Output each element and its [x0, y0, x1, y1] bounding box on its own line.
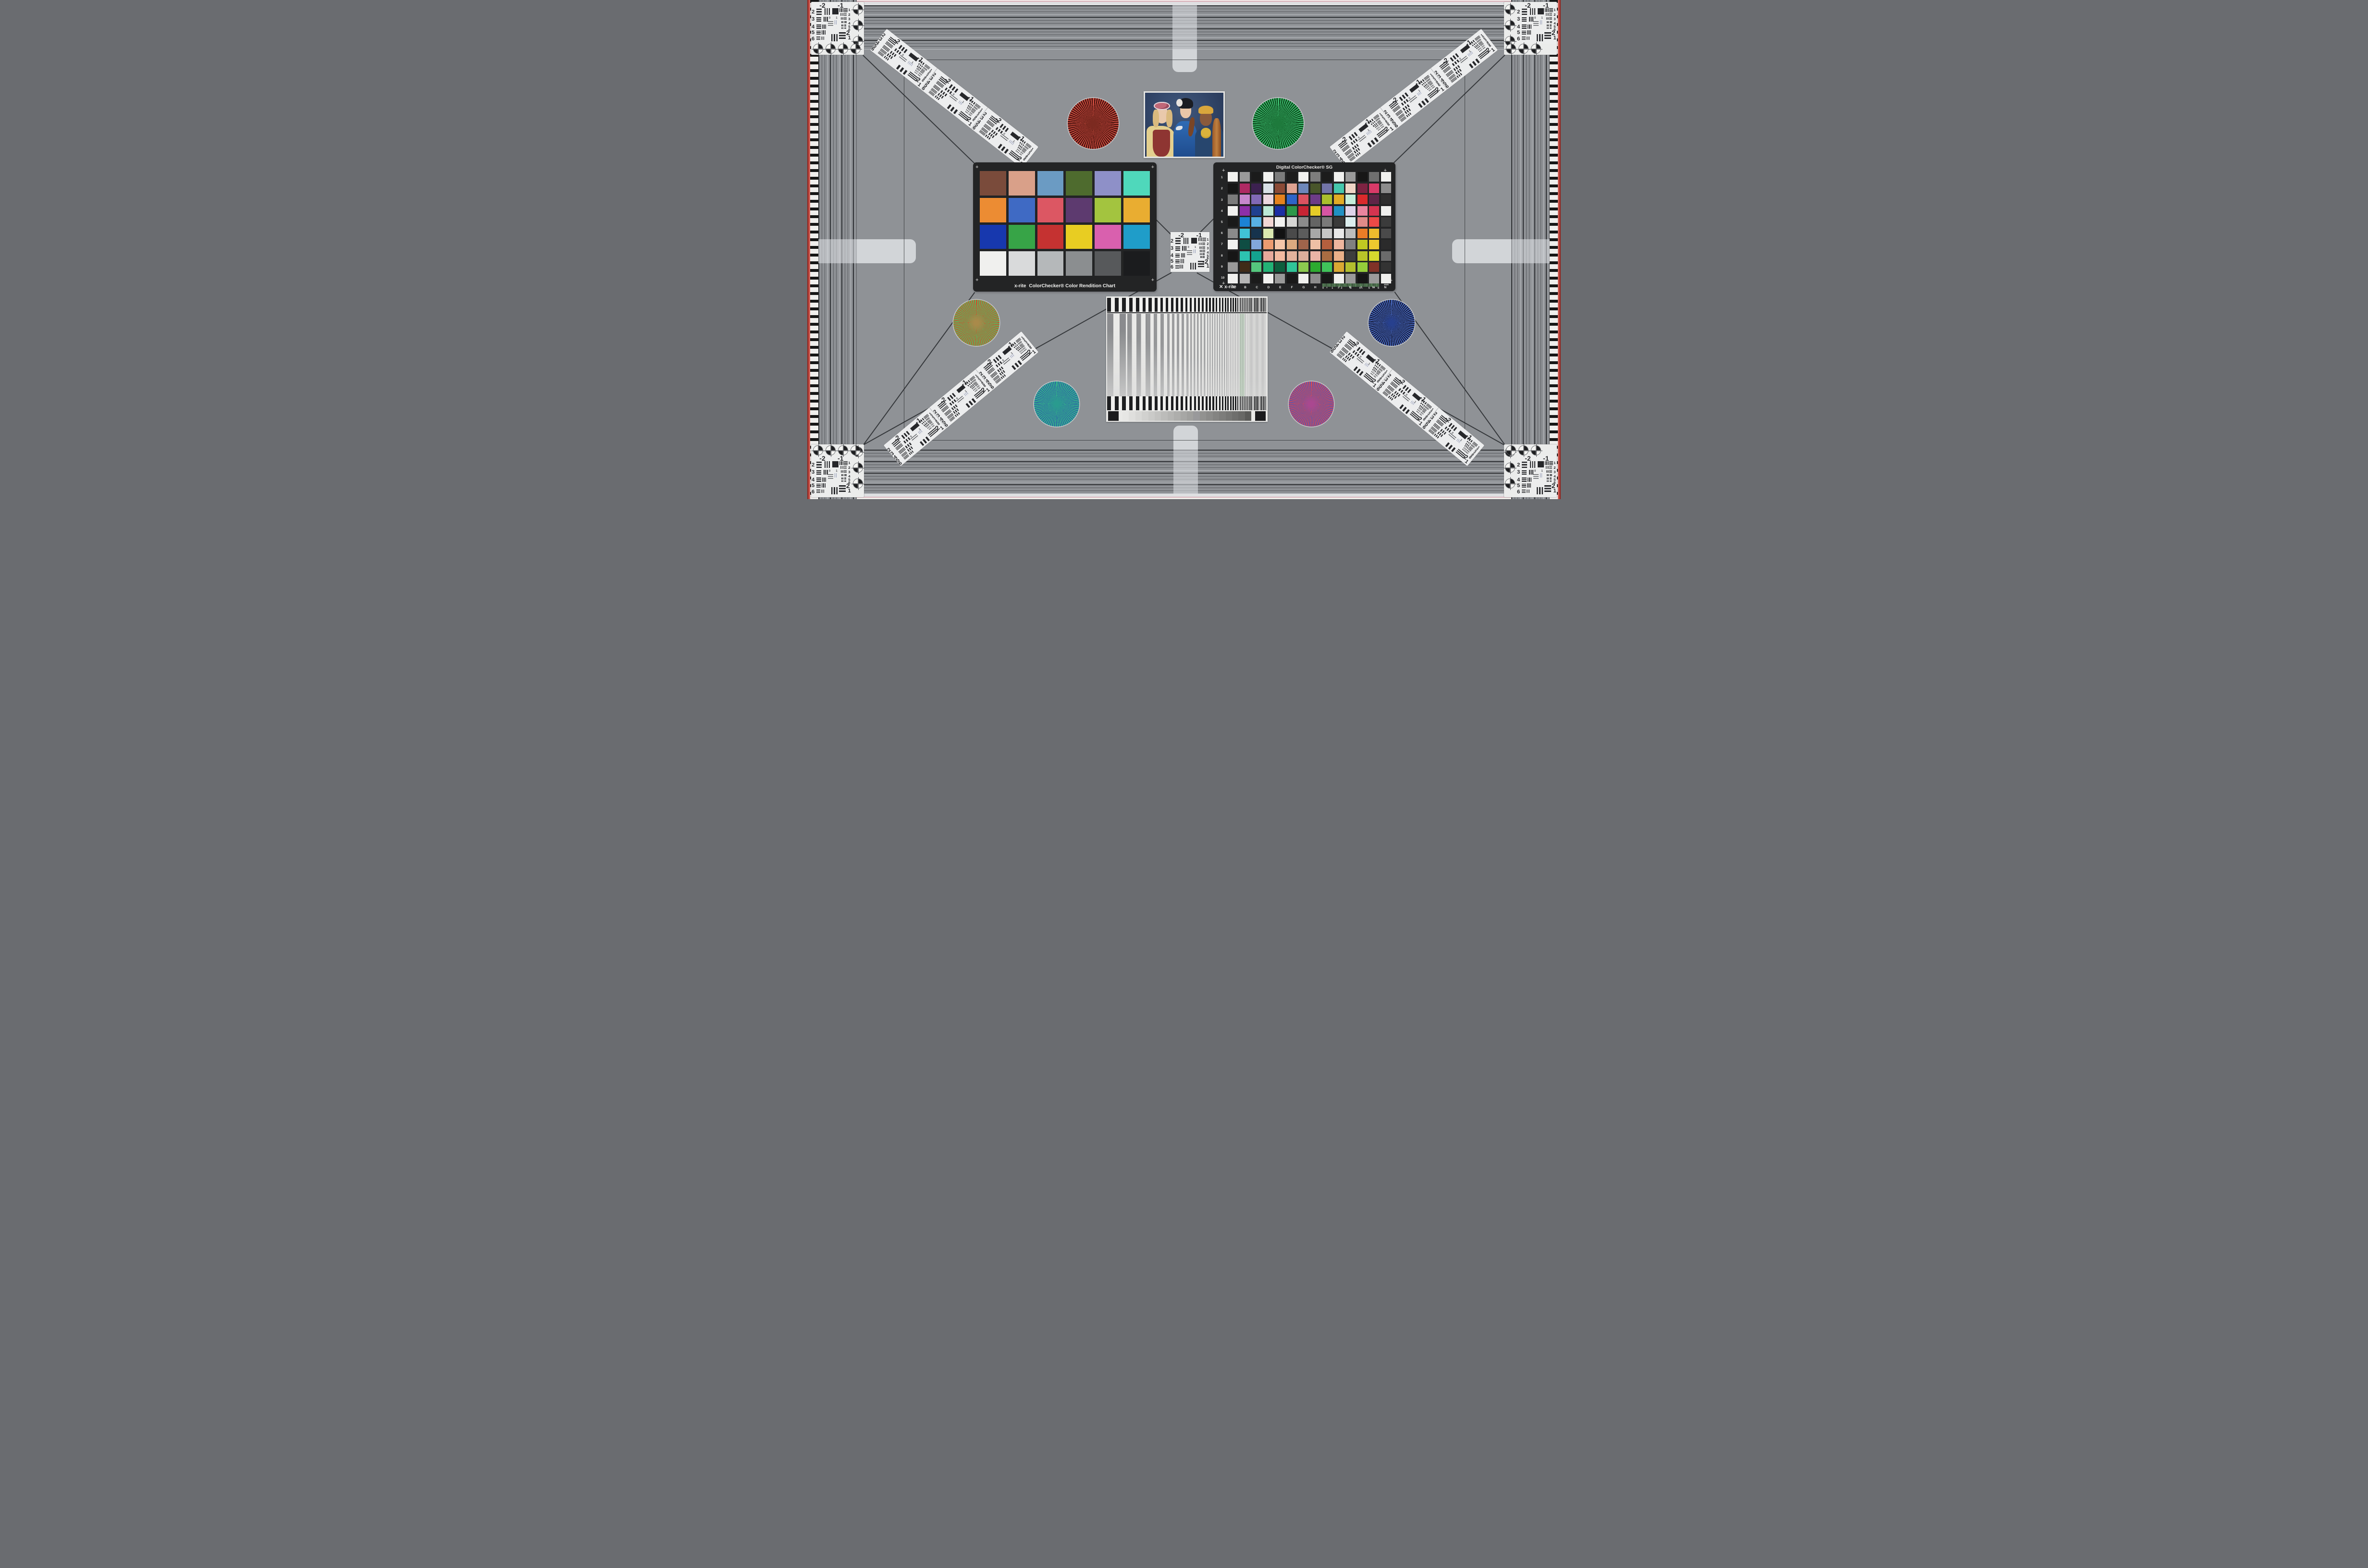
usaf-h: [816, 470, 822, 475]
wedge-black-end: [1255, 411, 1266, 421]
usaf-v: [1547, 24, 1549, 26]
test-scene: -2-123456123456-2101-2-123456123456-2101…: [807, 0, 1561, 499]
sine-segment: [1167, 314, 1187, 398]
sg-patch: [1322, 262, 1332, 272]
sg-patch: [1310, 229, 1320, 238]
sg-patch: [1334, 172, 1344, 182]
usaf-v: [841, 21, 844, 24]
quadrant-circle: [1505, 463, 1515, 472]
usaf-label: 6: [1437, 83, 1441, 87]
wedge-step: [1232, 411, 1238, 421]
sg-patch: [1310, 251, 1320, 261]
corner-block-tr: -2-123456123456-2101: [1504, 2, 1557, 55]
usaf-h: [839, 32, 846, 39]
three-musicians-photo: [1145, 93, 1223, 157]
usaf-h: [1175, 246, 1181, 251]
sg-patch: [1381, 195, 1391, 204]
sg-patch: [1263, 217, 1273, 227]
usaf-h: [1522, 24, 1527, 29]
usaf-label: 2: [1207, 242, 1209, 245]
sg-patch: [1310, 217, 1320, 227]
sg-patch: [1263, 206, 1273, 216]
usaf-v: [1199, 246, 1202, 249]
cc24-patch: [1095, 198, 1121, 222]
quadrant-circle: [1505, 21, 1515, 30]
usaf-label: 1: [1553, 489, 1556, 494]
quadrant-circle: [853, 479, 863, 488]
cc24-patch: [1095, 251, 1121, 276]
cc24-patch: [1066, 225, 1092, 249]
corner-mark: +: [975, 165, 978, 170]
sg-patch: [1345, 206, 1356, 216]
sg-patch: [1228, 172, 1238, 182]
sg-patch: [1381, 229, 1391, 238]
wedge-step: [1168, 411, 1174, 421]
usaf-h: [1198, 261, 1205, 267]
usaf-h: [1522, 17, 1527, 22]
usaf-mini: 01: [1533, 472, 1543, 481]
sg-patch: [1322, 251, 1332, 261]
sg-patch: [1369, 184, 1379, 193]
cc24-patch: [1123, 198, 1150, 222]
sg-patch: [1287, 262, 1297, 272]
usaf-label: 1: [1554, 461, 1555, 465]
sg-patch: [1298, 262, 1308, 272]
usaf-h: [1203, 253, 1205, 255]
wedge-step: [1174, 411, 1180, 421]
usaf-h: [1544, 32, 1551, 39]
sine-segment: [1247, 314, 1267, 398]
usaf-v: [1529, 470, 1533, 475]
usaf-v: [1537, 34, 1543, 41]
usaf-sq: [909, 52, 919, 61]
sine-segment: [1127, 314, 1147, 398]
sg-patch: [1310, 262, 1320, 272]
usaf-label: 6: [812, 37, 814, 42]
usaf-h: [1203, 256, 1205, 258]
wedge-step: [1226, 411, 1232, 421]
corner-mark: +: [1151, 165, 1154, 170]
cc24-patch: [980, 198, 1006, 222]
usaf-label: 3: [812, 17, 814, 22]
usaf-label: 2: [1517, 10, 1520, 15]
quadrant-circle: [826, 446, 835, 455]
wedge-step: [1122, 411, 1129, 421]
sg-patch: [1322, 195, 1332, 204]
sg-patch: [1310, 240, 1320, 249]
quadrant-circle: [839, 44, 848, 53]
sg-patch: [1251, 172, 1261, 182]
green-star: [1253, 98, 1304, 149]
usaf-v: [1527, 30, 1530, 35]
sg-patch: [1287, 217, 1297, 227]
bottom-edge-border: [807, 494, 1561, 499]
sg-patch: [1298, 240, 1308, 249]
sg-patch: [1334, 195, 1344, 204]
usaf-sq: [1002, 346, 1012, 355]
sweep-divider-line: [1107, 312, 1267, 313]
usaf-sq: [832, 461, 838, 467]
sg-patch: [1345, 172, 1356, 182]
sg-patch: [1357, 262, 1368, 272]
sg-patch: [1357, 195, 1368, 204]
sg-patch: [1298, 217, 1308, 227]
usaf-label: 1: [1440, 86, 1445, 92]
right-tick-strip: [1550, 0, 1558, 499]
sg-patch: [1263, 229, 1273, 238]
top-edge-border: [807, 0, 1561, 5]
bar-sweep-top: [1107, 298, 1267, 312]
usaf-h: [816, 462, 822, 468]
usaf-h: [1549, 13, 1552, 16]
sg-patch: [1322, 184, 1332, 193]
sg-patch: [1345, 251, 1356, 261]
sg-patch: [1334, 184, 1344, 193]
usaf-sq: [1538, 8, 1543, 14]
sg-patch: [1381, 206, 1391, 216]
usaf-v: [1200, 256, 1202, 258]
usaf-v: [1527, 483, 1530, 488]
quadrant-circle: [1531, 44, 1541, 53]
usaf-v: [825, 8, 830, 15]
sg-patch: [1322, 206, 1332, 216]
usaf-v: [1181, 259, 1184, 263]
sg-patch: [1228, 229, 1238, 238]
usaf-h: [1522, 478, 1527, 482]
sg-patch: [1228, 195, 1238, 204]
cc24-patch: [1123, 251, 1150, 276]
usaf-h: [1175, 238, 1181, 244]
sg-patch: [1275, 184, 1285, 193]
usaf-label: 3: [848, 17, 850, 21]
usaf-mini: 01: [1533, 19, 1543, 28]
sg-patch: [1381, 172, 1391, 182]
sg-patch: [1228, 217, 1238, 227]
usaf-h: [816, 17, 822, 22]
bar-sweep-bottom: [1107, 396, 1267, 410]
quadrant-circle: [1506, 44, 1516, 53]
sg-patch: [1357, 217, 1368, 227]
right-red-edge: [1558, 0, 1561, 499]
usaf-h: [1522, 9, 1527, 15]
sg-patch: [1322, 172, 1332, 182]
sg-patch: [1287, 274, 1297, 283]
sg-patch: [1240, 240, 1250, 249]
yellow-necklace: [1201, 128, 1211, 137]
usaf-h: [1522, 490, 1526, 493]
sg-patch: [1345, 217, 1356, 227]
quadrant-circle: [1519, 446, 1528, 455]
usaf-h: [1522, 31, 1526, 35]
sg-patch: [1287, 184, 1297, 193]
usaf-h: [844, 480, 846, 482]
usaf-sq: [1191, 238, 1197, 244]
sg-row-labels: 12345678910: [1221, 172, 1224, 283]
corner-mark: +: [1151, 278, 1154, 283]
cc24-patch: [1066, 171, 1092, 196]
sg-patch: [1298, 229, 1308, 238]
usaf-h: [816, 31, 821, 35]
sg-patch: [1334, 251, 1344, 261]
usaf-v: [1546, 470, 1549, 473]
usaf-v: [1180, 265, 1183, 268]
sg-patch: [1263, 262, 1273, 272]
quadrant-circle: [1531, 446, 1541, 455]
usaf-v: [1181, 253, 1185, 257]
corner-block-br: -2-123456123456-2101: [1504, 444, 1557, 497]
usaf-label: 1: [1554, 8, 1555, 12]
usaf-v: [822, 478, 826, 482]
sg-patch: [1251, 262, 1261, 272]
sg-patch: [1345, 274, 1356, 283]
usaf-label: 5: [1171, 259, 1173, 264]
sg-patch: [1240, 172, 1250, 182]
wedge-step: [1206, 411, 1212, 421]
usaf-label: 1: [1491, 47, 1496, 53]
usaf-v: [831, 34, 838, 41]
usaf-h: [1549, 470, 1552, 473]
sg-patch: [1322, 217, 1332, 227]
quadrant-circle: [851, 446, 860, 455]
usaf-sq: [910, 423, 920, 431]
sg-patch: [1263, 195, 1273, 204]
cc24-patch: [1009, 251, 1035, 276]
sg-patch: [1251, 217, 1261, 227]
sg-patch: [1240, 251, 1250, 261]
usaf-h: [1549, 17, 1552, 20]
sg-patch: [1287, 172, 1297, 182]
usaf-h: [1549, 8, 1553, 12]
usaf-label: 5: [812, 30, 814, 36]
sg-patch: [1381, 217, 1391, 227]
wedge-step: [1238, 411, 1245, 421]
sg-patch: [1381, 262, 1391, 272]
usaf-h: [844, 474, 847, 477]
usaf-v: [1546, 466, 1549, 469]
sg-patch: [1369, 206, 1379, 216]
usaf-v: [1547, 480, 1549, 482]
colorchecker-24-chart: + + + + x-riteColorChecker® Color Rendit…: [973, 162, 1157, 292]
sg-patch: [1275, 251, 1285, 261]
usaf-h: [1202, 246, 1205, 249]
usaf-label: 6: [1517, 37, 1520, 42]
usaf-label: 1: [1207, 264, 1209, 269]
usaf-h: [844, 13, 847, 16]
cc24-patch: [1009, 171, 1035, 196]
sg-patch: [1345, 240, 1356, 249]
corner-mark: +: [1222, 168, 1225, 173]
usaf-v: [1530, 461, 1535, 468]
usaf-h: [844, 21, 847, 24]
sg-patch: [1322, 229, 1332, 238]
usaf-v: [821, 37, 825, 40]
usaf-v: [1530, 8, 1535, 15]
sg-patch: [1369, 240, 1379, 249]
cc24-patch: [1009, 198, 1035, 222]
sg-patch: [1251, 206, 1261, 216]
sg-patch: [1310, 274, 1320, 283]
usaf-h: [816, 9, 822, 15]
grayscale-step-wedge: [1108, 411, 1266, 421]
usaf-v: [1200, 253, 1202, 255]
usaf-label: 5: [1517, 30, 1520, 36]
sine-segment: [1107, 314, 1127, 398]
usaf-h: [1202, 238, 1206, 241]
sg-patch: [1251, 195, 1261, 204]
wedge-step: [1129, 411, 1135, 421]
usaf-h: [1550, 478, 1552, 479]
usaf-v: [1547, 478, 1549, 479]
usaf-v: [1547, 21, 1549, 24]
sine-sweep-field: [1107, 314, 1267, 398]
usaf-v: [821, 490, 825, 493]
usaf-v: [1528, 478, 1531, 482]
sg-patch: [1240, 262, 1250, 272]
usaf-v: [1190, 263, 1196, 269]
cc24-title: x-riteColorChecker® Color Rendition Char…: [973, 283, 1157, 289]
sg-patch: [1298, 195, 1308, 204]
cc24-patch: [1123, 171, 1150, 196]
usaf-label: 6: [1488, 44, 1492, 48]
sg-patch: [1275, 229, 1285, 238]
usaf-mini: 01: [1187, 248, 1196, 257]
sg-patch: [1357, 229, 1368, 238]
quadrant-circle: [839, 446, 848, 455]
usaf-h: [816, 24, 821, 29]
usaf-h: [1203, 250, 1205, 252]
usaf-v: [1199, 243, 1202, 245]
sg-patch: [1251, 274, 1261, 283]
cc24-patch: [980, 251, 1006, 276]
usaf-label: 6: [1517, 490, 1520, 495]
sg-patch: [1369, 262, 1379, 272]
usaf-label: 1: [848, 36, 851, 41]
cc24-patch: [1037, 251, 1064, 276]
usaf-label: 3: [1517, 470, 1520, 475]
sg-patch: [1298, 172, 1308, 182]
sg-patch: [1287, 229, 1297, 238]
cc24-patch: [980, 171, 1006, 196]
red-star: [1068, 98, 1119, 149]
usaf-label: 2: [848, 466, 850, 470]
sg-patch: [1251, 229, 1261, 238]
usaf-v: [841, 17, 843, 20]
sg-patch: [1322, 274, 1332, 283]
usaf-label: 3: [1517, 17, 1520, 22]
usaf-h: [1550, 480, 1552, 482]
usaf-h: [816, 490, 820, 493]
usaf-label: 5: [1517, 483, 1520, 489]
sg-patch: [1240, 229, 1250, 238]
usaf-v: [1184, 238, 1189, 244]
usaf-h: [1175, 254, 1180, 257]
cc24-patch: [1123, 225, 1150, 249]
left-woman-vest: [1153, 130, 1170, 157]
corner-mark: +: [975, 278, 978, 283]
quadrant-circle: [851, 44, 860, 53]
sg-patch: [1275, 240, 1285, 249]
usaf-label: 5: [812, 483, 814, 489]
blue-star: [1369, 300, 1415, 346]
sg-patch: [1228, 251, 1238, 261]
usaf-label: 3: [812, 470, 814, 475]
corner-mark: +: [1390, 278, 1393, 283]
quadrant-circle: [1505, 479, 1515, 488]
usaf-label: 6: [812, 490, 814, 495]
cc24-patch: [1095, 171, 1121, 196]
sg-patch: [1357, 206, 1368, 216]
usaf-h: [1175, 265, 1179, 269]
sg-patch: [1357, 274, 1368, 283]
quadrant-circle: [1506, 446, 1516, 455]
sg-title: Digital ColorChecker® SG: [1213, 165, 1395, 170]
sg-patch: [1228, 240, 1238, 249]
usaf-v: [841, 474, 844, 477]
usaf-h: [1202, 243, 1205, 245]
usaf-sq: [832, 8, 838, 14]
usaf-sq: [1538, 461, 1543, 467]
usaf-h: [839, 485, 846, 492]
sg-patch: [1287, 195, 1297, 204]
sg-patch: [1369, 229, 1379, 238]
cc24-patch: [1066, 251, 1092, 276]
sg-patch: [1369, 172, 1379, 182]
sine-segment: [1147, 314, 1167, 398]
wedge-black-end: [1108, 411, 1119, 421]
sg-patch: [1263, 251, 1273, 261]
usaf-label: 2: [812, 463, 814, 468]
usaf-h: [1550, 24, 1552, 26]
xrite-logo: ✕ x-rite: [1219, 284, 1236, 290]
usaf-sq: [959, 92, 969, 101]
usaf-label: 3: [1171, 246, 1173, 251]
sg-patch: [1240, 274, 1250, 283]
wedge-step: [1187, 411, 1193, 421]
sg-mm-ruler: 0123456 mm: [1322, 283, 1389, 290]
cc24-patch: [980, 225, 1006, 249]
sg-patch: [1287, 251, 1297, 261]
wedge-step: [1142, 411, 1148, 421]
sg-patch: [1263, 240, 1273, 249]
sg-patch: [1298, 274, 1308, 283]
wedge-step: [1245, 411, 1251, 421]
usaf-label: 3: [1554, 17, 1555, 21]
usaf-h: [1522, 484, 1526, 488]
usaf-h: [844, 24, 847, 26]
colorchecker-24-grid: [980, 171, 1150, 276]
usaf-h: [1175, 259, 1180, 263]
sg-patch: [1334, 274, 1344, 283]
cc24-patch: [1037, 225, 1064, 249]
usaf-h: [816, 484, 821, 488]
usaf-h: [1550, 474, 1552, 477]
sg-patch: [1298, 206, 1308, 216]
yellow-headwrap: [1198, 106, 1213, 114]
sg-patch: [1334, 206, 1344, 216]
usaf-label: 3: [1207, 246, 1209, 250]
usaf-v: [1547, 27, 1549, 29]
sg-patch: [1345, 195, 1356, 204]
cc24-patch: [1095, 225, 1121, 249]
usaf-v: [839, 8, 843, 12]
usaf-v: [1545, 461, 1548, 465]
sg-patch: [1240, 184, 1250, 193]
usaf-label: 2: [1171, 239, 1173, 244]
cc24-patch: [1037, 171, 1064, 196]
usaf-v: [1200, 250, 1202, 252]
usaf-label: 1: [848, 489, 851, 494]
teal-star: [1034, 381, 1079, 427]
